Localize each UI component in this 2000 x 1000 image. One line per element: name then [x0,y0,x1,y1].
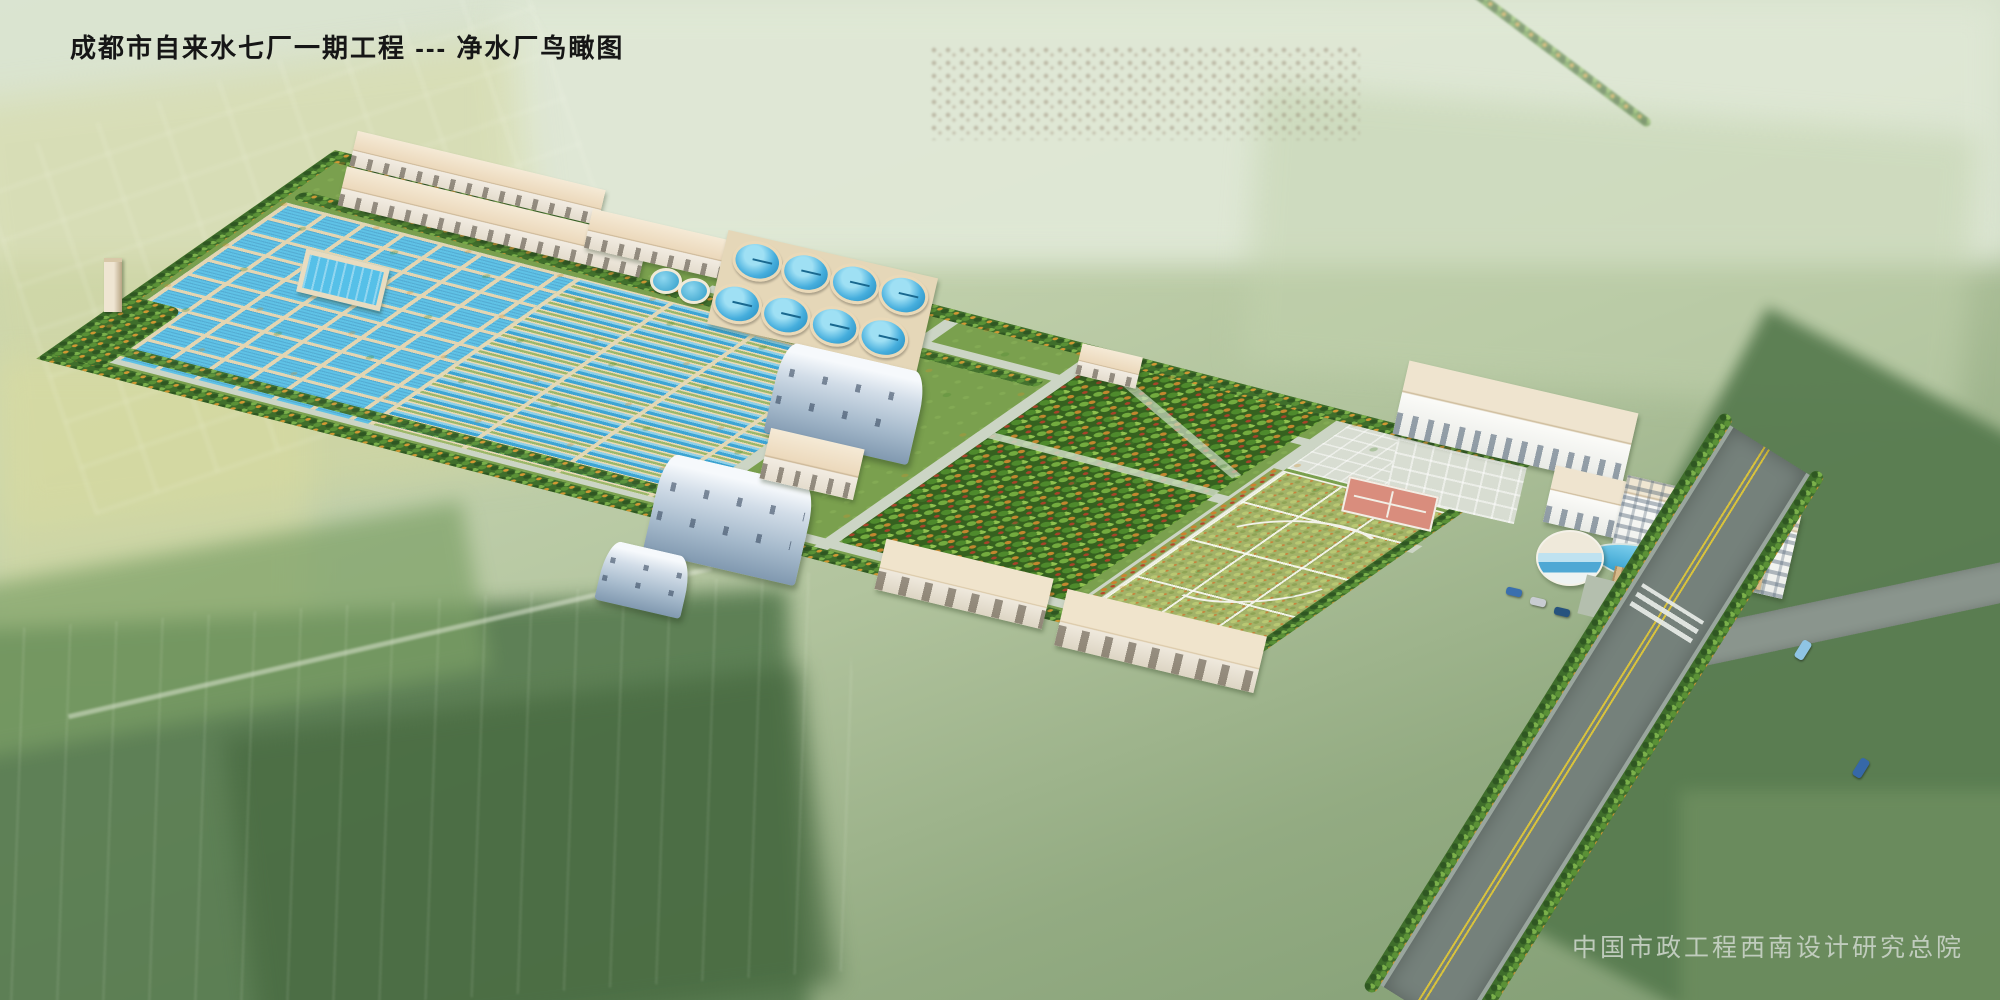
aerial-rendering-canvas: 成都市自来水七厂一期工程 --- 净水厂鸟瞰图 中国市政工程西南设计研究总院 [0,0,2000,1000]
parked-car-1 [1505,586,1522,597]
clarifier-tank-4 [875,270,933,320]
clarifier-tank-8 [854,313,912,363]
parked-car-2 [1529,596,1546,607]
clarifier-tank-1 [728,236,786,286]
clarifier-tank-6 [757,290,815,340]
water-tower [104,258,122,312]
clarifier-tank-2 [777,247,835,297]
clarifier-tank-7 [806,301,864,351]
crosswalk [1629,583,1704,643]
clarifier-tank-5 [708,279,766,329]
field-lines-bottomleft [0,570,873,1000]
village-cluster [930,45,1360,140]
small-round-tank-2 [678,278,710,304]
field-corner-bottomright [1680,790,2000,1000]
parked-car-3 [1553,606,1570,617]
designer-credit: 中国市政工程西南设计研究总院 [1572,928,1964,964]
clarifier-tank-3 [826,259,884,309]
page-title: 成都市自来水七厂一期工程 --- 净水厂鸟瞰图 [70,28,624,65]
